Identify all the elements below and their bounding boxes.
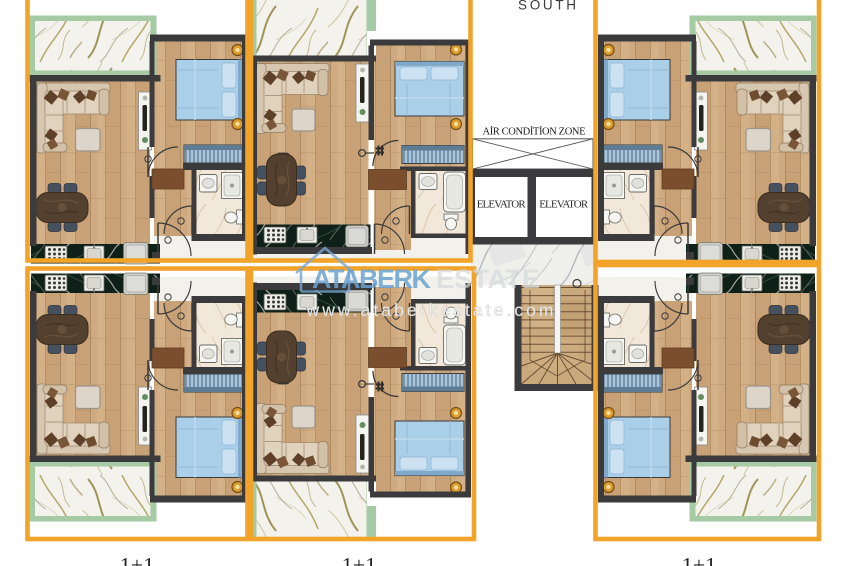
svg-text:www.ataberkestate.com: www.ataberkestate.com: [306, 300, 554, 320]
svg-text:SOUTH: SOUTH: [518, 0, 576, 13]
svg-text:ELEVATOR: ELEVATOR: [539, 199, 589, 211]
svg-text:1+1: 1+1: [342, 553, 376, 566]
svg-text:1+1: 1+1: [682, 553, 716, 566]
svg-text:ESTATE: ESTATE: [436, 264, 540, 294]
svg-text:AİR CONDİTİON ZONE: AİR CONDİTİON ZONE: [483, 126, 586, 138]
svg-text:ATABERK: ATABERK: [312, 264, 432, 294]
svg-text:ELEVATOR: ELEVATOR: [477, 199, 527, 211]
svg-text:1+1: 1+1: [120, 553, 154, 566]
